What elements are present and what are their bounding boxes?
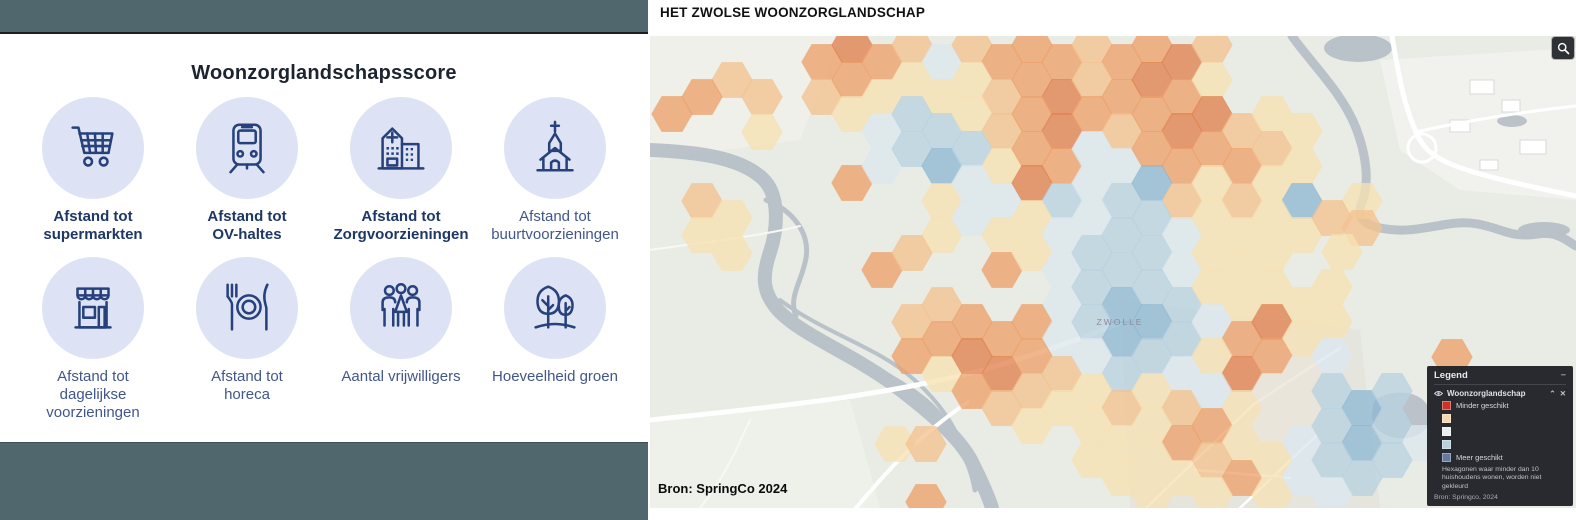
score-item-horeca: Afstand tot horeca — [170, 257, 324, 422]
score-label: Afstand tot supermarkten — [43, 208, 142, 244]
score-label: Afstand tot Zorgvoorzieningen — [334, 208, 469, 244]
map-title: HET ZWOLSE WOONZORGLANDSCHAP — [660, 5, 925, 20]
swatch-blue — [1442, 453, 1451, 462]
score-label: Afstand tot horeca — [211, 368, 283, 404]
score-item-buurtvoorzieningen: Afstand tot buurtvoorzieningen — [478, 97, 632, 257]
score-label: Afstand tot dagelijkse voorzieningen — [46, 368, 139, 422]
people-icon — [350, 257, 452, 359]
storefront-icon — [42, 257, 144, 359]
legend-title: Legend — [1434, 370, 1468, 381]
hospital-icon — [350, 97, 452, 199]
legend-panel: Legend − Woonzorglandschap ⌃ ✕ Minder ge… — [1427, 366, 1573, 506]
tram-icon — [196, 97, 298, 199]
chevron-up-icon[interactable]: ⌃ — [1549, 389, 1555, 398]
magnifier-icon — [1557, 42, 1570, 55]
left-panel-top-bar — [0, 0, 648, 34]
left-panel-bottom-bar — [0, 442, 648, 520]
map-attribution: Bron: SpringCo 2024 — [658, 481, 787, 496]
score-item-groen: Hoeveelheid groen — [478, 257, 632, 422]
legend-source: Bron: Springco, 2024 — [1434, 494, 1566, 501]
magnifier-button[interactable] — [1552, 37, 1574, 59]
eye-icon[interactable] — [1434, 389, 1443, 398]
church-icon — [504, 97, 606, 199]
score-item-ov-haltes: Afstand tot OV-haltes — [170, 97, 324, 257]
score-item-supermarkten: Afstand tot supermarkten — [16, 97, 170, 257]
swatch-pale — [1442, 427, 1451, 436]
legend-layer-name: Woonzorglandschap — [1447, 389, 1526, 398]
left-panel-title: Woonzorglandschapsscore — [0, 62, 648, 85]
city-label: ZWOLLE — [1097, 317, 1144, 327]
score-label: Afstand tot buurtvoorzieningen — [491, 208, 619, 244]
score-icon-grid: Afstand tot supermarkten Afstand tot OV-… — [0, 97, 648, 422]
trees-icon — [504, 257, 606, 359]
hexagon — [906, 485, 946, 509]
legend-note: Hexagonen waar minder dan 10 huishoudens… — [1442, 466, 1566, 491]
legend-swatch-row — [1434, 426, 1566, 437]
map-panel: HET ZWOLSE WOONZORGLANDSCHAP — [648, 0, 1576, 520]
shopping-cart-icon — [42, 97, 144, 199]
legend-swatch-row — [1434, 439, 1566, 450]
score-label: Aantal vrijwilligers — [341, 368, 460, 386]
score-item-zorgvoorzieningen: Afstand tot Zorgvoorzieningen — [324, 97, 478, 257]
score-item-vrijwilligers: Aantal vrijwilligers — [324, 257, 478, 422]
swatch-lightblue — [1442, 440, 1451, 449]
close-icon[interactable]: ✕ — [1560, 389, 1566, 398]
legend-swatch-row — [1434, 413, 1566, 424]
left-infographic-panel: Woonzorglandschapsscore Afstand tot supe… — [0, 0, 648, 520]
legend-swatch-row: Meer geschikt — [1434, 452, 1566, 463]
restaurant-icon — [196, 257, 298, 359]
swatch-peach — [1442, 414, 1451, 423]
score-item-dagelijkse-voorzieningen: Afstand tot dagelijkse voorzieningen — [16, 257, 170, 422]
screenshot-stage: Woonzorglandschapsscore Afstand tot supe… — [0, 0, 1576, 520]
map-canvas[interactable]: ZWOLLE Bron: SpringCo 2024 Legend − — [650, 36, 1576, 508]
score-label: Hoeveelheid groen — [492, 368, 618, 386]
swatch-red — [1442, 401, 1451, 410]
score-label: Afstand tot OV-haltes — [207, 208, 286, 244]
legend-swatch-row: Minder geschikt — [1434, 400, 1566, 411]
legend-collapse-icon[interactable]: − — [1560, 370, 1566, 381]
